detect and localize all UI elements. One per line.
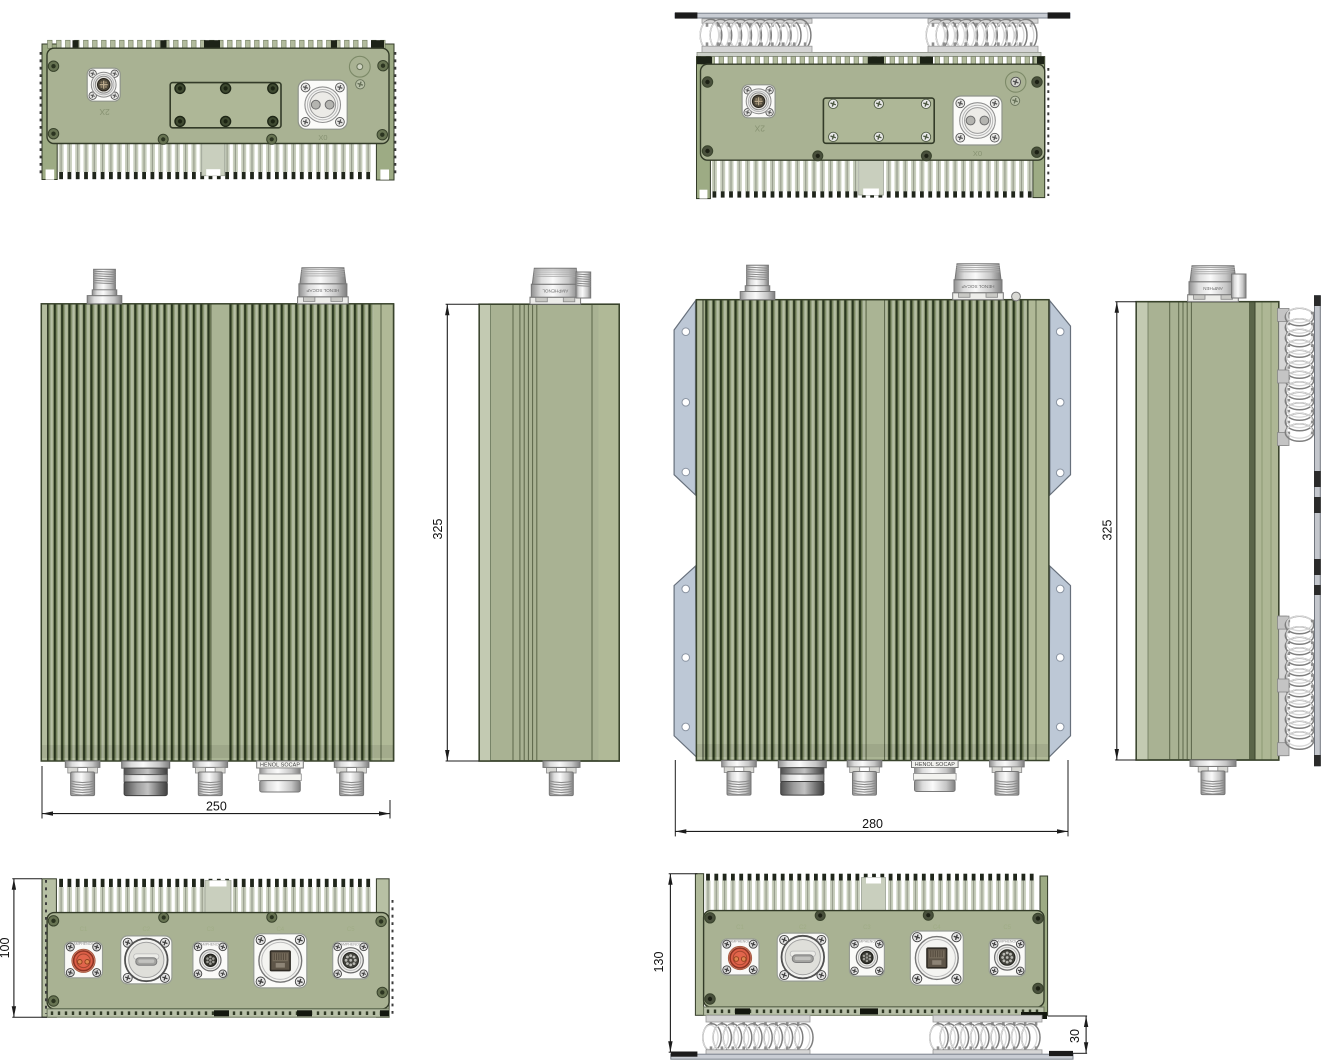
svg-text:HENOL SOCAP: HENOL SOCAP	[961, 284, 994, 289]
svg-text:2X: 2X	[754, 124, 765, 134]
svg-text:130: 130	[652, 952, 666, 973]
svg-text:AMPHENOL: AMPHENOL	[857, 940, 877, 944]
svg-text:AMPHEN: AMPHEN	[1203, 286, 1223, 291]
svg-text:AMPHENOL: AMPHENOL	[200, 943, 220, 947]
svg-text:C5: C5	[347, 927, 355, 933]
svg-text:280: 280	[862, 817, 883, 831]
svg-text:0X: 0X	[318, 133, 327, 142]
svg-text:30: 30	[1068, 1029, 1082, 1043]
svg-text:AMPHENOL: AMPHENOL	[997, 940, 1017, 944]
svg-text:C4: C4	[933, 925, 941, 931]
svg-text:C2: C2	[799, 925, 807, 931]
svg-text:325: 325	[1101, 520, 1115, 541]
svg-text:C1: C1	[736, 925, 744, 931]
svg-text:325: 325	[431, 519, 445, 540]
svg-text:AMPHENOL: AMPHENOL	[73, 942, 93, 946]
svg-text:C2: C2	[142, 927, 150, 933]
svg-text:0X: 0X	[973, 149, 982, 158]
svg-text:AMPHENOL: AMPHENOL	[341, 943, 361, 947]
svg-text:100: 100	[0, 938, 12, 959]
svg-text:C1: C1	[80, 927, 88, 933]
svg-text:250: 250	[206, 800, 227, 814]
svg-text:C3: C3	[207, 927, 215, 933]
svg-text:HENOL SOCAP: HENOL SOCAP	[306, 288, 339, 293]
svg-text:C4: C4	[276, 927, 284, 933]
svg-text:AMPHENOL: AMPHENOL	[542, 288, 568, 293]
svg-text:C5: C5	[1003, 925, 1011, 931]
svg-text:AMPHENOL: AMPHENOL	[730, 939, 750, 943]
svg-text:C3: C3	[863, 925, 871, 931]
svg-text:2X: 2X	[99, 107, 110, 117]
